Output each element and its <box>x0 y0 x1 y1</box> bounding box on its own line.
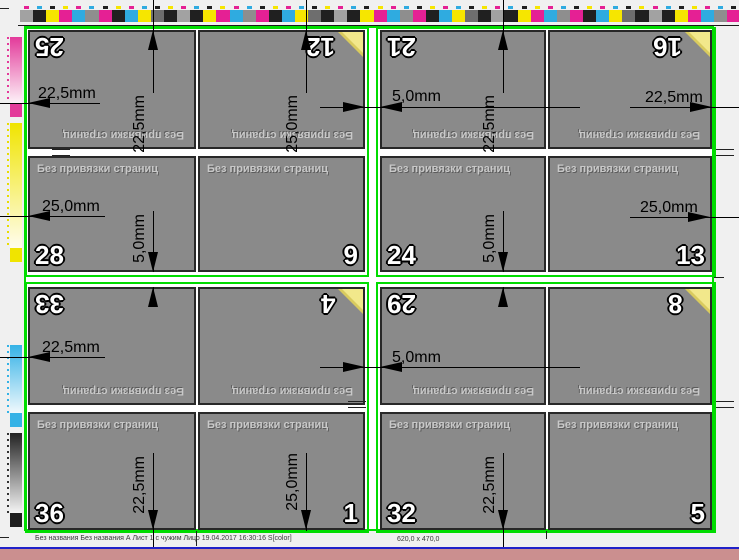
page-label: Без привязки страниц <box>579 385 700 397</box>
color-patch <box>609 6 622 22</box>
color-patch <box>531 6 544 22</box>
collation-mark-triangle-inner <box>689 32 710 53</box>
register-tick <box>52 149 70 156</box>
dim-line <box>630 217 739 218</box>
dim-arrow-down <box>148 252 158 272</box>
page-cell-12[interactable]: 12 Без привязки страниц <box>198 30 365 149</box>
color-patch <box>452 6 465 22</box>
color-patch <box>85 6 98 22</box>
page-label: Без привязки страниц <box>37 419 158 431</box>
dim-arrow-right <box>688 212 710 222</box>
dim-label-top-margin: 22,5mm <box>481 95 499 153</box>
register-tick <box>716 401 734 408</box>
dim-arrow-up <box>498 287 508 307</box>
color-patch <box>20 6 33 22</box>
color-patch <box>269 6 282 22</box>
dim-arrow-up <box>148 30 158 50</box>
page-number: 5 <box>691 500 705 526</box>
color-patch <box>216 6 229 22</box>
register-tick <box>716 149 734 156</box>
dim-label-bottom-margin: 22,5mm <box>481 456 499 514</box>
dim-arrow-left <box>28 211 50 221</box>
dim-arrow-up <box>148 287 158 307</box>
color-patch <box>203 6 216 22</box>
color-patch <box>243 6 256 22</box>
register-tick <box>714 277 724 278</box>
page-label: Без привязки страниц <box>579 129 700 141</box>
color-patch <box>230 6 243 22</box>
page-number: 4 <box>321 291 335 317</box>
color-patch <box>622 6 635 22</box>
color-calibration-bar <box>20 6 739 22</box>
dim-arrow-down <box>148 510 158 530</box>
page-label: Без привязки страниц <box>37 163 158 175</box>
collation-mark-triangle-inner <box>342 32 363 53</box>
page-cell-1[interactable]: 1 Без привязки страниц <box>198 412 365 530</box>
dim-label-left-margin-low: 22,5mm <box>42 339 100 357</box>
page-label: Без привязки страниц <box>557 419 678 431</box>
dim-arrow-down <box>498 252 508 272</box>
color-patch <box>334 6 347 22</box>
cyan-gradient-strip <box>10 345 22 413</box>
page-label: Без привязки страниц <box>207 419 328 431</box>
dim-label-bottom-margin: 25,0mm <box>284 453 302 511</box>
dim-arrow-left <box>28 98 50 108</box>
page-label: Без привязки страниц <box>413 385 534 397</box>
dim-arrow-right <box>343 102 365 112</box>
cyan-solid-patch <box>10 413 22 427</box>
color-patch <box>46 6 59 22</box>
page-number: 9 <box>344 242 358 268</box>
color-patch <box>714 6 727 22</box>
imposition-preview: 25 Без привязки страниц 12 Без привязки … <box>0 0 739 560</box>
dim-arrow-down <box>498 510 508 530</box>
color-patch <box>439 6 452 22</box>
color-patch <box>596 6 609 22</box>
page-label: Без привязки страниц <box>207 163 328 175</box>
page-number: 13 <box>676 242 705 268</box>
dim-line <box>630 107 739 108</box>
color-patch <box>688 6 701 22</box>
page-label: Без привязки страниц <box>389 419 510 431</box>
color-patch <box>544 6 557 22</box>
page-label: Без привязки страниц <box>413 129 534 141</box>
color-patch <box>478 6 491 22</box>
color-patch <box>347 6 360 22</box>
color-patch <box>59 6 72 22</box>
color-patch <box>125 6 138 22</box>
page-number: 24 <box>387 242 416 268</box>
color-patch <box>308 6 321 22</box>
color-patch <box>504 6 517 22</box>
dim-line <box>153 453 154 560</box>
job-info-text: Без названия Без названия А Лист 1 с чуж… <box>35 535 292 542</box>
color-patch <box>374 6 387 22</box>
color-patch <box>649 6 662 22</box>
color-patch <box>321 6 334 22</box>
dim-arrow-right <box>690 102 712 112</box>
color-patch <box>413 6 426 22</box>
collation-mark-triangle-inner <box>689 289 710 310</box>
dim-line <box>0 103 100 104</box>
color-patch <box>426 6 439 22</box>
black-solid-patch <box>10 513 22 527</box>
page-cell-9[interactable]: 9 Без привязки страниц <box>198 156 365 272</box>
color-patch <box>164 6 177 22</box>
page-cell-5[interactable]: 5 Без привязки страниц <box>548 412 712 530</box>
page-cell-8[interactable]: 8 Без привязки страниц <box>548 287 712 405</box>
color-patch <box>400 6 413 22</box>
dim-label-top-margin: 22,5mm <box>131 95 149 153</box>
color-patch <box>583 6 596 22</box>
color-patch <box>701 6 714 22</box>
page-label: Без привязки страниц <box>63 385 184 397</box>
dim-line <box>0 357 105 358</box>
dim-arrow-left <box>28 352 50 362</box>
page-cell-32[interactable]: 32 Без привязки страниц <box>380 412 546 530</box>
dim-label-gutter: 5,0mm <box>392 88 441 106</box>
register-tick <box>348 401 366 408</box>
sheet-top-cut-line <box>18 25 739 26</box>
page-number: 8 <box>668 291 682 317</box>
page-label: Без привязки страниц <box>557 163 678 175</box>
color-patch <box>256 6 269 22</box>
page-number: 21 <box>387 34 416 60</box>
color-patch <box>33 6 46 22</box>
dim-arrow-up <box>301 30 311 50</box>
color-patch <box>662 6 675 22</box>
page-number: 33 <box>35 291 64 317</box>
page-cell-36[interactable]: 36 Без привязки страниц <box>28 412 196 530</box>
color-patch <box>190 6 203 22</box>
magenta-solid-patch <box>10 103 22 117</box>
cut-mark <box>546 531 547 539</box>
dim-arrow-up <box>498 30 508 50</box>
page-label: Без привязки страниц <box>389 163 510 175</box>
dim-label-row-gutter: 5,0mm <box>131 214 149 263</box>
collation-mark-triangle-inner <box>342 289 363 310</box>
page-number: 29 <box>387 291 416 317</box>
register-tick <box>0 8 9 9</box>
page-label: Без привязки страниц <box>63 129 184 141</box>
page-cell-4[interactable]: 4 Без привязки страниц <box>198 287 365 405</box>
color-patch <box>282 6 295 22</box>
page-label: Без привязки страниц <box>232 385 353 397</box>
color-patch <box>518 6 531 22</box>
sheet-size-text: 620,0 x 470,0 <box>397 536 439 543</box>
color-patch <box>675 6 688 22</box>
dim-arrow-down <box>301 510 311 530</box>
register-tick <box>0 537 9 538</box>
page-number: 1 <box>344 500 358 526</box>
dim-label-top-margin: 25,0mm <box>284 95 302 153</box>
color-patch <box>465 6 478 22</box>
dim-label-row-gutter: 5,0mm <box>481 214 499 263</box>
color-patch <box>138 6 151 22</box>
page-number: 25 <box>35 34 64 60</box>
color-patch <box>570 6 583 22</box>
footer-salmon-bar <box>0 549 739 560</box>
page-number: 16 <box>653 34 682 60</box>
dim-label-gutter: 5,0mm <box>392 349 441 367</box>
color-patch <box>177 6 190 22</box>
magenta-gradient-strip <box>10 37 22 103</box>
black-gradient-strip <box>10 433 22 513</box>
page-number: 28 <box>35 242 64 268</box>
color-patch <box>387 6 400 22</box>
color-patch <box>112 6 125 22</box>
page-cell-29[interactable]: 29 Без привязки страниц <box>380 287 546 405</box>
dim-arrow-right <box>343 362 365 372</box>
color-patch <box>72 6 85 22</box>
dim-line <box>503 453 504 560</box>
yellow-solid-patch <box>10 248 22 262</box>
page-cell-24[interactable]: 24 Без привязки страниц <box>380 156 546 272</box>
color-patch <box>727 6 739 22</box>
color-patch <box>99 6 112 22</box>
yellow-gradient-strip <box>10 123 22 248</box>
color-patch <box>557 6 570 22</box>
color-patch <box>360 6 373 22</box>
dim-line <box>0 216 105 217</box>
color-patch <box>635 6 648 22</box>
dim-label-bottom-margin: 22,5mm <box>131 456 149 514</box>
page-number: 32 <box>387 500 416 526</box>
dim-label-left-margin-mid: 25,0mm <box>42 198 100 216</box>
page-number: 36 <box>35 500 64 526</box>
